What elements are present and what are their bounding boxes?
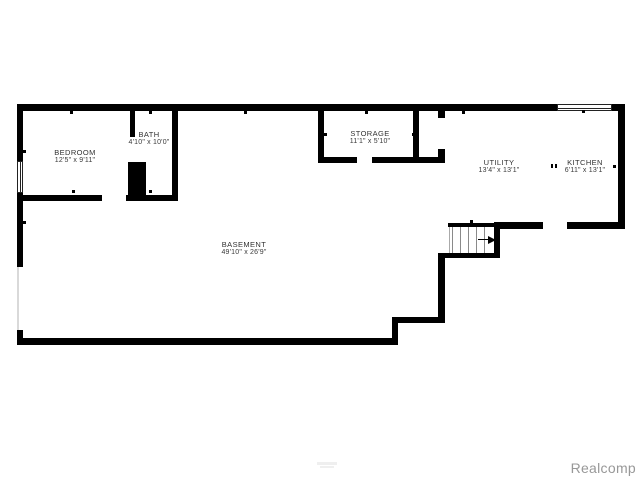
- room-name: BATH: [117, 131, 181, 139]
- realcomp-watermark: Realcomp: [571, 460, 636, 476]
- wall-step-vertical-inner: [438, 253, 445, 323]
- dimension-tick: [470, 220, 473, 223]
- wall-stairs-top: [448, 223, 497, 227]
- wall-stairs-bottom: [438, 253, 500, 258]
- room-dimensions: 49'10" x 26'9": [196, 249, 292, 257]
- room-label-bath: BATH 4'10" x 10'0": [117, 131, 181, 147]
- room-name: KITCHEN: [543, 159, 627, 167]
- wall-bath-right: [172, 104, 178, 195]
- dimension-tick: [23, 221, 26, 224]
- wall-kitchen-bottom: [567, 222, 625, 229]
- wall-utility-door-stub-bottom: [438, 149, 445, 163]
- dimension-tick: [244, 111, 247, 114]
- dimension-tick: [365, 111, 368, 114]
- stair-tread: [484, 227, 485, 253]
- room-label-storage: STORAGE 11'1" x 5'10": [328, 130, 412, 146]
- wall-storage-bottom-left: [318, 157, 357, 163]
- stair-tread: [476, 227, 477, 253]
- window-glass-line: [558, 108, 611, 109]
- dimension-tick: [149, 111, 152, 114]
- dimension-tick: [582, 110, 585, 113]
- room-dimensions: 11'1" x 5'10": [328, 138, 412, 146]
- dimension-tick: [70, 111, 73, 114]
- dimension-tick: [149, 190, 152, 193]
- room-name: UTILITY: [457, 159, 541, 167]
- stair-tread: [452, 227, 453, 253]
- dimension-tick: [462, 111, 465, 114]
- window-glass-line: [20, 162, 21, 192]
- faint-artifact: [320, 466, 334, 468]
- dimension-tick: [412, 133, 415, 136]
- room-label-basement: BASEMENT 49'10" x 26'9": [196, 241, 292, 257]
- room-dimensions: 6'11" x 13'1": [543, 167, 627, 175]
- floorplan-canvas: BEDROOM 12'5" x 9'11" BATH 4'10" x 10'0"…: [0, 0, 640, 480]
- wall-storage-bottom-right: [372, 157, 445, 163]
- stair-tread: [460, 227, 461, 253]
- wall-utility-bottom: [494, 222, 543, 229]
- window-left-bedroom: [17, 161, 23, 193]
- wall-bedroom-bottom-left: [17, 195, 102, 201]
- dimension-tick: [72, 190, 75, 193]
- stair-tread: [468, 227, 469, 253]
- furnace-chase-solid: [128, 162, 146, 196]
- dimension-tick: [324, 133, 327, 136]
- room-dimensions: 4'10" x 10'0": [117, 139, 181, 147]
- room-label-utility: UTILITY 13'4" x 13'1": [457, 159, 541, 175]
- faint-artifact: [317, 462, 337, 465]
- wall-utility-door-stub-top: [438, 104, 445, 118]
- room-dimensions: 13'4" x 13'1": [457, 167, 541, 175]
- stairs-left-edge: [449, 227, 450, 253]
- room-name: STORAGE: [328, 130, 412, 138]
- wall-bottom: [17, 338, 398, 345]
- room-name: BEDROOM: [28, 149, 122, 157]
- dimension-tick: [23, 150, 26, 153]
- room-label-kitchen: KITCHEN 6'11" x 13'1": [543, 159, 627, 175]
- room-dimensions: 12'5" x 9'11": [28, 157, 122, 165]
- stairs-direction-arrow: [488, 236, 496, 244]
- room-label-bedroom: BEDROOM 12'5" x 9'11": [28, 149, 122, 165]
- room-name: BASEMENT: [196, 241, 292, 249]
- wall-left-opening: [17, 267, 19, 330]
